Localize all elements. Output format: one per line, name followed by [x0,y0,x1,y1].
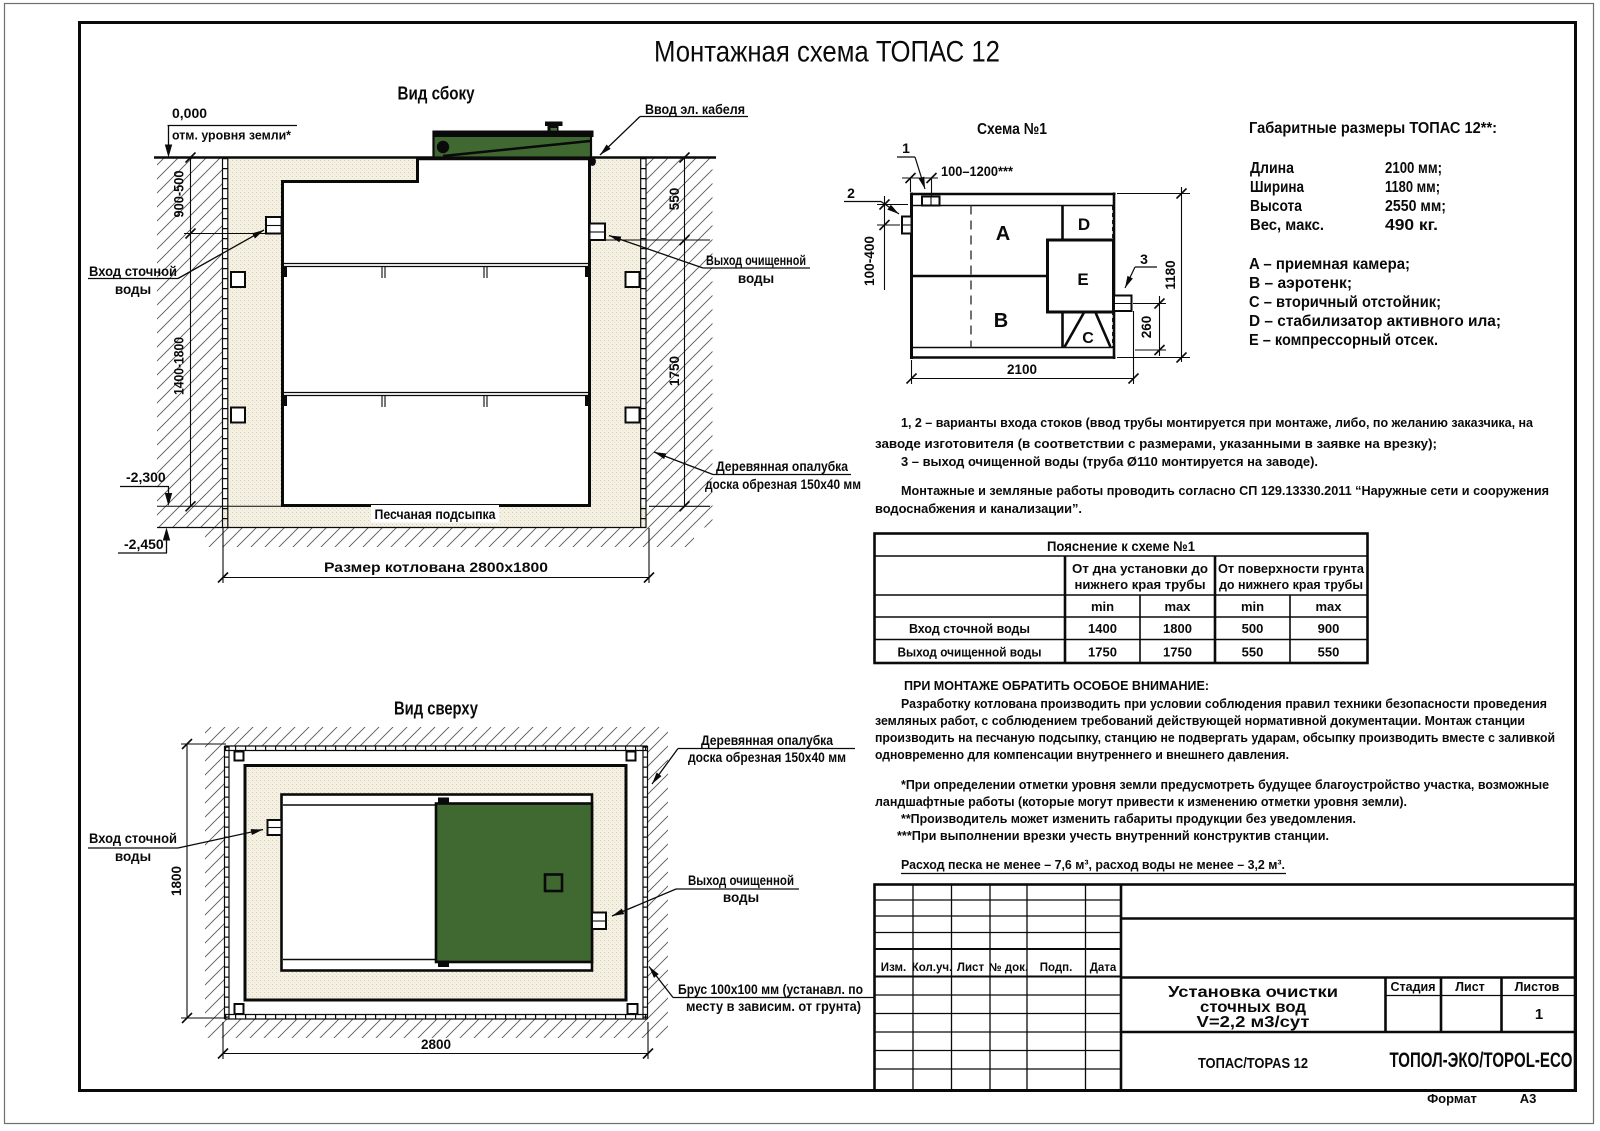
svg-text:D – стабилизатор активного ила: D – стабилизатор активного ила; [1249,313,1501,330]
svg-text:ТОПАС/TOPAS 12: ТОПАС/TOPAS 12 [1198,1055,1308,1072]
svg-text:А3: А3 [1520,1091,1537,1106]
svg-text:-2,450: -2,450 [124,536,164,552]
svg-text:Габаритные размеры ТОПАС 12**:: Габаритные размеры ТОПАС 12**: [1249,120,1497,137]
svg-text:Выход очищенной воды: Выход очищенной воды [898,645,1042,660]
svg-text:Вход сточной: Вход сточной [89,831,177,846]
svg-text:нижнего края трубы: нижнего края трубы [1075,577,1206,592]
svg-text:Выход очищенной: Выход очищенной [706,253,806,268]
svg-text:1: 1 [902,140,910,156]
svg-text:490 кг.: 490 кг. [1385,217,1438,234]
svg-text:№ док.: № док. [989,962,1028,974]
svg-text:Монтажные и земляные работы пр: Монтажные и земляные работы проводить со… [901,483,1549,498]
svg-text:550: 550 [1318,645,1340,660]
svg-text:-2,300: -2,300 [126,469,166,485]
svg-text:отм. уровня земли*: отм. уровня земли* [172,129,291,143]
svg-text:Листов: Листов [1515,980,1560,994]
svg-text:550: 550 [667,188,682,211]
svg-text:Формат: Формат [1427,1091,1477,1106]
svg-text:***При выполнении врезки учест: ***При выполнении врезки учесть внутренн… [897,828,1329,843]
svg-text:Вид сбоку: Вид сбоку [398,83,476,104]
svg-text:C: C [1082,330,1094,347]
svg-text:Расход песка не менее – 7,6 м³: Расход песка не менее – 7,6 м³, расход в… [901,857,1285,872]
svg-text:1400-1800: 1400-1800 [172,337,187,395]
svg-text:1750: 1750 [1088,645,1117,660]
svg-text:Схема №1: Схема №1 [977,121,1047,138]
svg-text:2550 мм;: 2550 мм; [1385,198,1446,215]
svg-text:Ширина: Ширина [1250,179,1304,196]
svg-text:Кол.уч.: Кол.уч. [912,962,953,974]
svg-text:Вход сточной воды: Вход сточной воды [909,621,1030,636]
svg-text:3 – выход очищенной воды (труб: 3 – выход очищенной воды (труба Ø110 мон… [901,454,1318,469]
svg-text:Размер котлована 2800х1800: Размер котлована 2800х1800 [324,560,548,575]
svg-text:260: 260 [1139,316,1154,339]
svg-text:доска обрезная 150х40 мм: доска обрезная 150х40 мм [688,750,846,765]
svg-text:От поверхности грунта: От поверхности грунта [1218,561,1365,576]
svg-text:Брус 100х100 мм (устанавл. по: Брус 100х100 мм (устанавл. по [678,982,863,997]
svg-text:Монтажная схема ТОПАС 12: Монтажная схема ТОПАС 12 [654,36,1000,69]
svg-text:Деревянная опалубка: Деревянная опалубка [701,733,833,748]
svg-text:100-400: 100-400 [862,236,877,286]
svg-text:доска обрезная 150х40 мм: доска обрезная 150х40 мм [705,477,861,492]
svg-text:**Производитель может изменить: **Производитель может изменить габариты … [901,811,1356,826]
svg-text:E – компрессорный отсек.: E – компрессорный отсек. [1249,332,1438,349]
svg-text:1400: 1400 [1088,621,1117,636]
svg-text:2800: 2800 [421,1037,451,1052]
svg-text:max: max [1315,599,1342,614]
svg-text:воды: воды [115,849,151,864]
svg-text:Изм.: Изм. [881,962,906,974]
svg-text:воды: воды [115,282,151,297]
svg-text:ландшафтные работы (которые мо: ландшафтные работы (которые могут привес… [875,794,1407,809]
svg-text:min: min [1241,599,1264,614]
svg-text:Стадия: Стадия [1390,980,1435,994]
svg-text:месту в зависим. от грунта): месту в зависим. от грунта) [686,999,861,1014]
svg-text:до нижнего края трубы: до нижнего края трубы [1219,577,1363,592]
svg-text:производить на песчаную подсып: производить на песчаную подсыпку, станци… [875,730,1555,745]
svg-text:C – вторичный отстойник;: C – вторичный отстойник; [1249,294,1441,311]
svg-text:Песчаная подсыпка: Песчаная подсыпка [375,507,496,522]
svg-text:Вид сверху: Вид сверху [394,698,479,719]
svg-text:100–1200***: 100–1200*** [941,164,1014,179]
svg-text:2100: 2100 [1007,362,1037,377]
svg-text:D: D [1078,215,1090,234]
svg-text:Разработку котлована производи: Разработку котлована производить при усл… [901,696,1547,711]
svg-text:земляных работ, с соблюдением: земляных работ, с соблюдением требований… [875,713,1525,728]
svg-text:1750: 1750 [1163,645,1192,660]
svg-text:Лист: Лист [957,962,985,974]
svg-text:воды: воды [723,890,759,905]
svg-text:V=2,2 м3/сут: V=2,2 м3/сут [1197,1014,1310,1031]
svg-text:1800: 1800 [169,866,184,896]
svg-text:min: min [1091,599,1114,614]
svg-text:1800: 1800 [1163,621,1192,636]
svg-text:1750: 1750 [667,356,682,386]
svg-text:900-500: 900-500 [172,171,187,218]
svg-text:2100 мм;: 2100 мм; [1385,160,1442,177]
svg-text:Пояснение к схеме №1: Пояснение к схеме №1 [1047,538,1195,554]
svg-text:От дна установки до: От дна установки до [1072,561,1208,576]
svg-text:550: 550 [1242,645,1264,660]
svg-text:1180 мм;: 1180 мм; [1385,179,1440,196]
svg-text:1: 1 [1535,1006,1543,1023]
svg-text:*При определении отметки уровн: *При определении отметки уровня земли пр… [901,777,1549,792]
svg-text:max: max [1164,599,1191,614]
svg-text:Лист: Лист [1455,980,1485,994]
svg-text:Высота: Высота [1250,198,1302,215]
svg-text:одновременно для компенсации в: одновременно для компенсации внутреннего… [875,747,1289,762]
svg-text:Выход очищенной: Выход очищенной [688,873,794,888]
svg-text:A: A [996,223,1010,245]
svg-text:Длина: Длина [1250,160,1294,177]
svg-text:Вход сточной: Вход сточной [89,264,177,279]
svg-text:2: 2 [847,185,855,201]
svg-text:заводе изготовителя (в соответ: заводе изготовителя (в соответствии с ра… [875,436,1437,451]
svg-text:Деревянная опалубка: Деревянная опалубка [716,459,848,474]
svg-text:воды: воды [738,271,774,286]
svg-text:500: 500 [1242,621,1264,636]
svg-text:ТОПОЛ-ЭКО/TOPOL-ECO: ТОПОЛ-ЭКО/TOPOL-ECO [1390,1049,1573,1072]
svg-text:A – приемная камера;: A – приемная камера; [1249,256,1410,273]
svg-text:900: 900 [1318,621,1340,636]
svg-text:1180: 1180 [1163,260,1178,289]
svg-text:Ввод эл. кабеля: Ввод эл. кабеля [645,102,745,117]
svg-text:B – аэротенк;: B – аэротенк; [1249,275,1352,292]
svg-text:B: B [994,310,1008,332]
svg-text:водоснабжения и канализации”.: водоснабжения и канализации”. [875,501,1082,516]
svg-text:1, 2 – варианты входа стоков: 1, 2 – варианты входа стоков (ввод трубы… [901,415,1534,430]
svg-text:3: 3 [1140,251,1148,267]
svg-text:Подп.: Подп. [1040,962,1073,974]
svg-text:ПРИ МОНТАЖЕ ОБРАТИТЬ ОСОБОЕ ВН: ПРИ МОНТАЖЕ ОБРАТИТЬ ОСОБОЕ ВНИМАНИЕ: [904,678,1209,693]
svg-text:E: E [1077,270,1088,289]
svg-text:0,000: 0,000 [172,105,207,121]
svg-text:Вес, макс.: Вес, макс. [1250,217,1324,234]
svg-text:Дата: Дата [1090,962,1117,974]
